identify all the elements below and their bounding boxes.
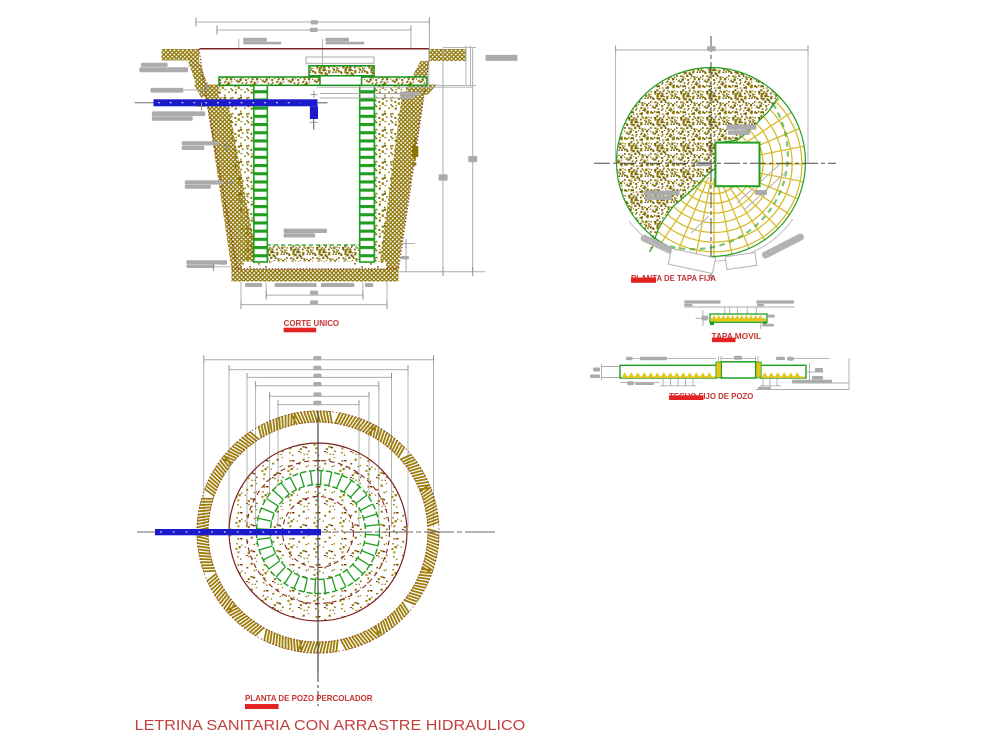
svg-text:LETRINA SANITARIA CON ARRASTRE: LETRINA SANITARIA CON ARRASTRE HIDRAULIC… (135, 717, 526, 734)
svg-text:PLANTA DE POZO PERCOLADOR: PLANTA DE POZO PERCOLADOR (245, 693, 373, 703)
svg-text:CORTE UNICO: CORTE UNICO (284, 319, 340, 328)
